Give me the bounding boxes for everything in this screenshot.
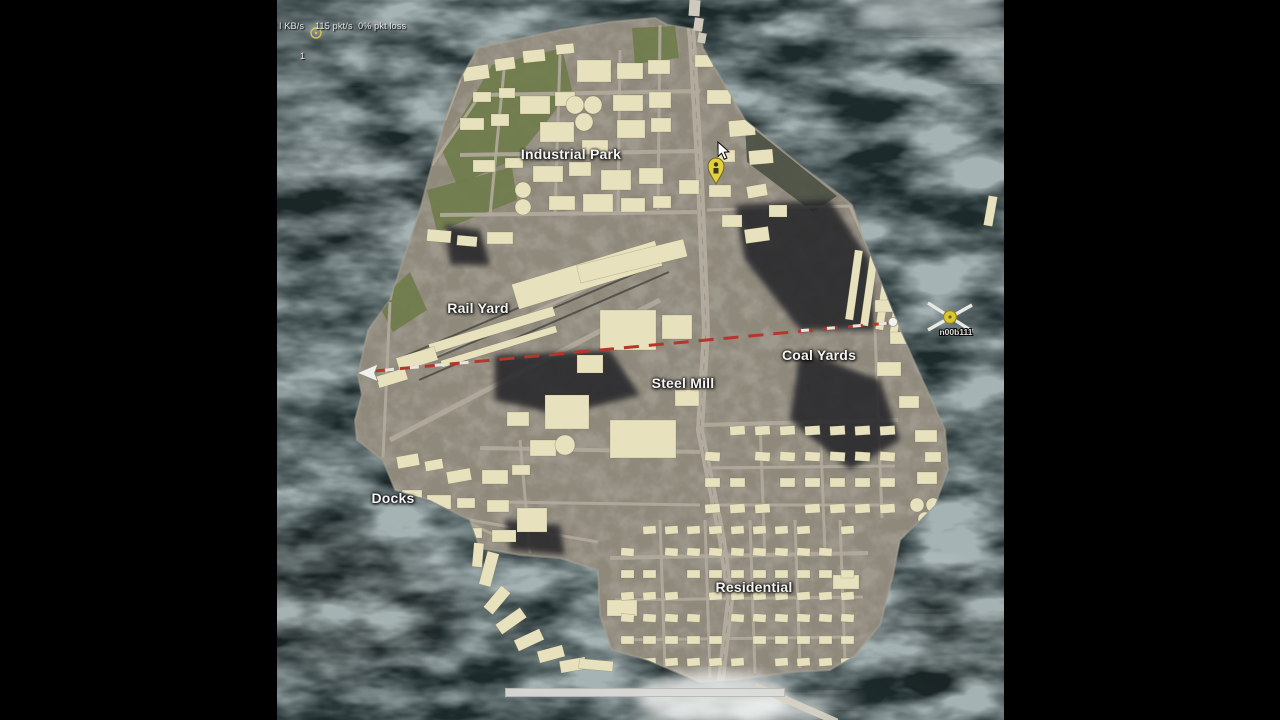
tactical-map[interactable]: n00b111 <box>277 0 1004 720</box>
letterbox-right <box>1004 0 1280 720</box>
bottom-scrollbar[interactable] <box>505 688 785 697</box>
map-label-rail-yard: Rail Yard <box>447 300 508 316</box>
map-label-steel-mill: Steel Mill <box>652 375 715 391</box>
netstats-overlay: I KB/s 115 pkt/s 0% pkt loss 1 <box>279 1 406 81</box>
map-label-docks: Docks <box>371 490 414 506</box>
player-name-label: n00b111 <box>939 327 972 337</box>
letterbox-left <box>0 0 277 720</box>
route-origin-dot <box>889 318 898 327</box>
netstats-line1: I KB/s 115 pkt/s 0% pkt loss <box>279 21 406 31</box>
netstats-line2: 1 <box>300 51 406 61</box>
map-terrain <box>277 0 1004 720</box>
letterboxed-stage: n00b111 I KB/s 115 pkt/s 0% pkt loss 1 I… <box>0 0 1280 720</box>
map-label-residential: Residential <box>716 579 793 595</box>
map-viewport[interactable]: n00b111 I KB/s 115 pkt/s 0% pkt loss 1 I… <box>277 0 1004 720</box>
map-label-industrial-park: Industrial Park <box>521 146 621 162</box>
map-label-coal-yards: Coal Yards <box>782 347 856 363</box>
pin-glyph <box>714 162 718 166</box>
